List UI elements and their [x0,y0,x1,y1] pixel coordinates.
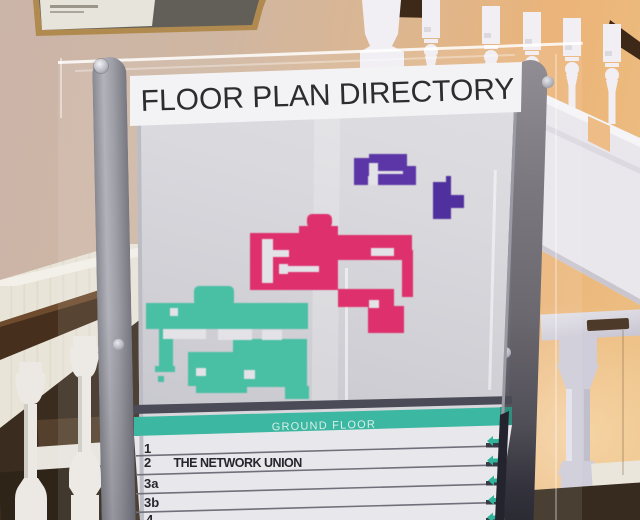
svg-text:THE NETWORK UNION: THE NETWORK UNION [174,456,303,470]
svg-text:3a: 3a [144,476,159,491]
svg-text:4: 4 [146,512,154,520]
svg-text:3b: 3b [144,495,159,510]
svg-text:2: 2 [144,455,151,470]
svg-text:1: 1 [144,441,151,456]
